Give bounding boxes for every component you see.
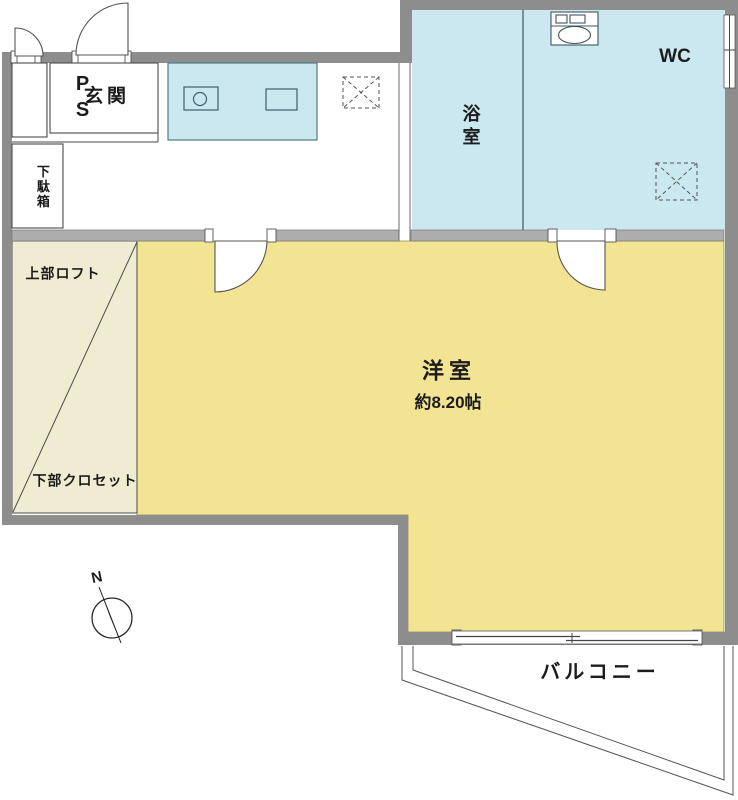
entrance-label: 玄関 <box>84 87 130 107</box>
compass-icon <box>92 587 132 643</box>
loft-label: 上部ロフト <box>26 267 101 282</box>
western-room-size: 約8.20帖 <box>414 394 481 412</box>
closet-label: 下部クロセット <box>33 474 138 489</box>
interior-walls <box>12 230 724 241</box>
balcony-window-icon <box>452 631 702 644</box>
refrigerator-space-icon <box>343 77 379 108</box>
floor-plan: PS 玄関 下駄箱 浴室 WC 洋室 約8.20帖 上部ロフト 下部クロセット … <box>0 0 738 800</box>
wc-label: WC <box>659 47 691 67</box>
bathroom-label: 浴室 <box>461 104 480 150</box>
wc-window-icon <box>724 15 735 88</box>
ps-door-arc <box>15 28 43 56</box>
shoe-cabinet-label: 下駄箱 <box>35 165 49 210</box>
thin-partition <box>399 63 410 241</box>
entrance-door-arc <box>76 3 128 55</box>
western-room-floor <box>137 241 724 632</box>
toilet-icon <box>551 12 598 45</box>
balcony-label: バルコニー <box>540 663 660 684</box>
western-room-label: 洋室 <box>422 359 476 382</box>
pipe-space-box <box>12 63 47 137</box>
kitchen-counter <box>168 63 317 140</box>
